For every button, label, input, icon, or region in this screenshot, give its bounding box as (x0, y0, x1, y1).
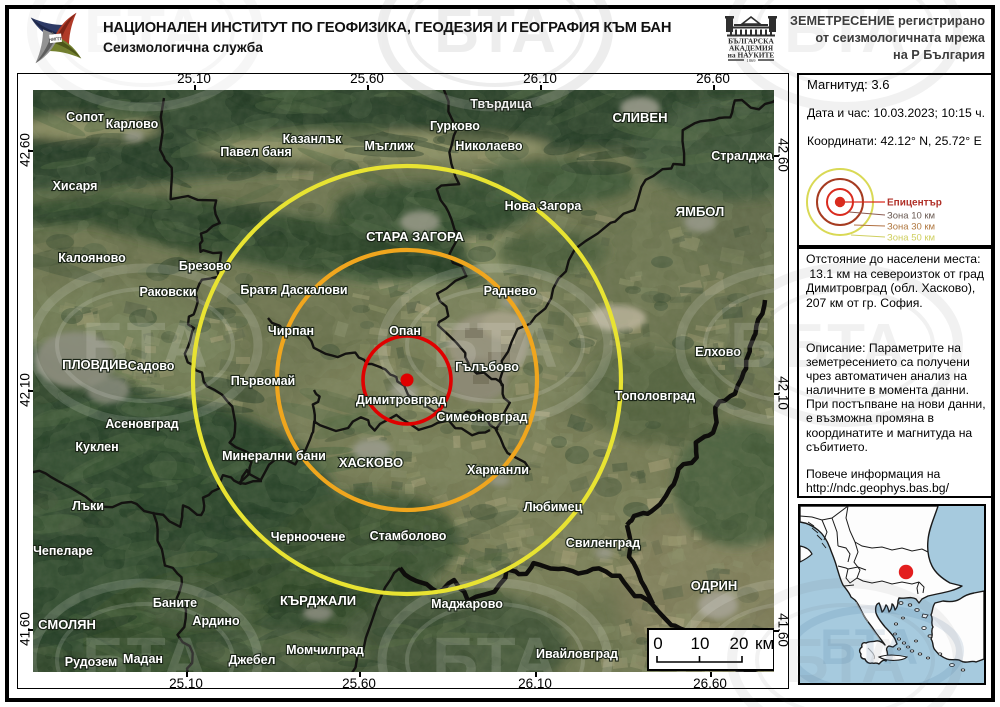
svg-text:Ивайловград: Ивайловград (536, 647, 618, 661)
svg-text:0: 0 (653, 634, 662, 653)
svg-text:Хисаря: Хисаря (53, 179, 98, 193)
svg-text:Първомай: Първомай (231, 374, 295, 388)
svg-text:ЯМБОЛ: ЯМБОЛ (676, 204, 724, 219)
svg-text:Павел баня: Павел баня (220, 145, 291, 159)
svg-text:Николаево: Николаево (455, 139, 522, 153)
svg-text:СМОЛЯН: СМОЛЯН (38, 617, 96, 632)
svg-text:Братя Даскалови: Братя Даскалови (240, 283, 347, 297)
svg-text:Брезово: Брезово (179, 259, 232, 273)
svg-text:Зона 30 км: Зона 30 км (887, 222, 935, 233)
svg-text:Садово: Садово (128, 359, 175, 373)
svg-text:Тополовград: Тополовград (615, 389, 695, 403)
svg-text:Казанлък: Казанлък (283, 132, 342, 146)
svg-text:Маджарово: Маджарово (431, 597, 503, 611)
svg-text:Свиленград: Свиленград (566, 536, 640, 550)
svg-text:Минерални бани: Минерални бани (222, 449, 326, 463)
svg-text:Момчилград: Момчилград (286, 643, 364, 657)
svg-text:КЪРДЖАЛИ: КЪРДЖАЛИ (280, 593, 356, 608)
svg-text:Чирпан: Чирпан (268, 324, 314, 338)
svg-text:Асеновград: Асеновград (105, 417, 178, 431)
svg-text:Баните: Баните (153, 596, 197, 610)
svg-text:Калояново: Калояново (58, 251, 126, 265)
svg-text:1869: 1869 (747, 58, 757, 62)
svg-text:Зона 10 км: Зона 10 км (887, 211, 935, 222)
svg-text:ОДРИН: ОДРИН (691, 578, 738, 593)
svg-text:Ардино: Ардино (192, 614, 240, 628)
svg-text:Твърдица: Твърдица (470, 97, 532, 111)
svg-text:СЛИВЕН: СЛИВЕН (613, 110, 668, 125)
svg-text:10: 10 (691, 634, 710, 653)
svg-text:Опан: Опан (389, 324, 421, 338)
svg-text:Мадан: Мадан (123, 652, 163, 666)
svg-text:Нова Загора: Нова Загора (505, 199, 583, 213)
svg-text:БТА: БТА (820, 619, 918, 675)
svg-text:Симеоновград: Симеоновград (436, 410, 527, 424)
svg-text:Гурково: Гурково (430, 119, 480, 133)
svg-text:км: км (755, 634, 774, 653)
svg-text:Стамболово: Стамболово (370, 529, 447, 543)
svg-text:Мъглиж: Мъглиж (365, 139, 414, 153)
svg-text:Епицентър: Епицентър (887, 198, 942, 209)
svg-text:Харманли: Харманли (467, 463, 529, 477)
svg-text:20: 20 (730, 634, 749, 653)
svg-text:Елхово: Елхово (695, 345, 741, 359)
svg-text:СТАРА ЗАГОРА: СТАРА ЗАГОРА (366, 229, 464, 244)
svg-text:Куклен: Куклен (75, 440, 118, 454)
svg-text:Чепеларе: Чепеларе (33, 544, 93, 558)
svg-text:Гълъбово: Гълъбово (455, 360, 519, 374)
svg-text:Любимец: Любимец (524, 500, 583, 514)
svg-text:ХАСКОВО: ХАСКОВО (339, 455, 403, 470)
svg-text:Раднево: Раднево (484, 284, 537, 298)
svg-text:ПЛОВДИВ: ПЛОВДИВ (62, 357, 128, 372)
svg-text:Рудозем: Рудозем (65, 655, 117, 669)
svg-text:Стралджа: Стралджа (711, 149, 774, 163)
svg-text:Черноочене: Черноочене (271, 530, 346, 544)
svg-text:Карлово: Карлово (106, 117, 159, 131)
svg-text:Димитровград: Димитровград (356, 393, 446, 407)
svg-text:Джебел: Джебел (228, 653, 275, 667)
svg-text:Лъки: Лъки (72, 499, 104, 513)
svg-text:Сопот: Сопот (66, 110, 104, 124)
svg-text:Раковски: Раковски (139, 285, 196, 299)
svg-text:Зона 50 км: Зона 50 км (887, 233, 935, 244)
